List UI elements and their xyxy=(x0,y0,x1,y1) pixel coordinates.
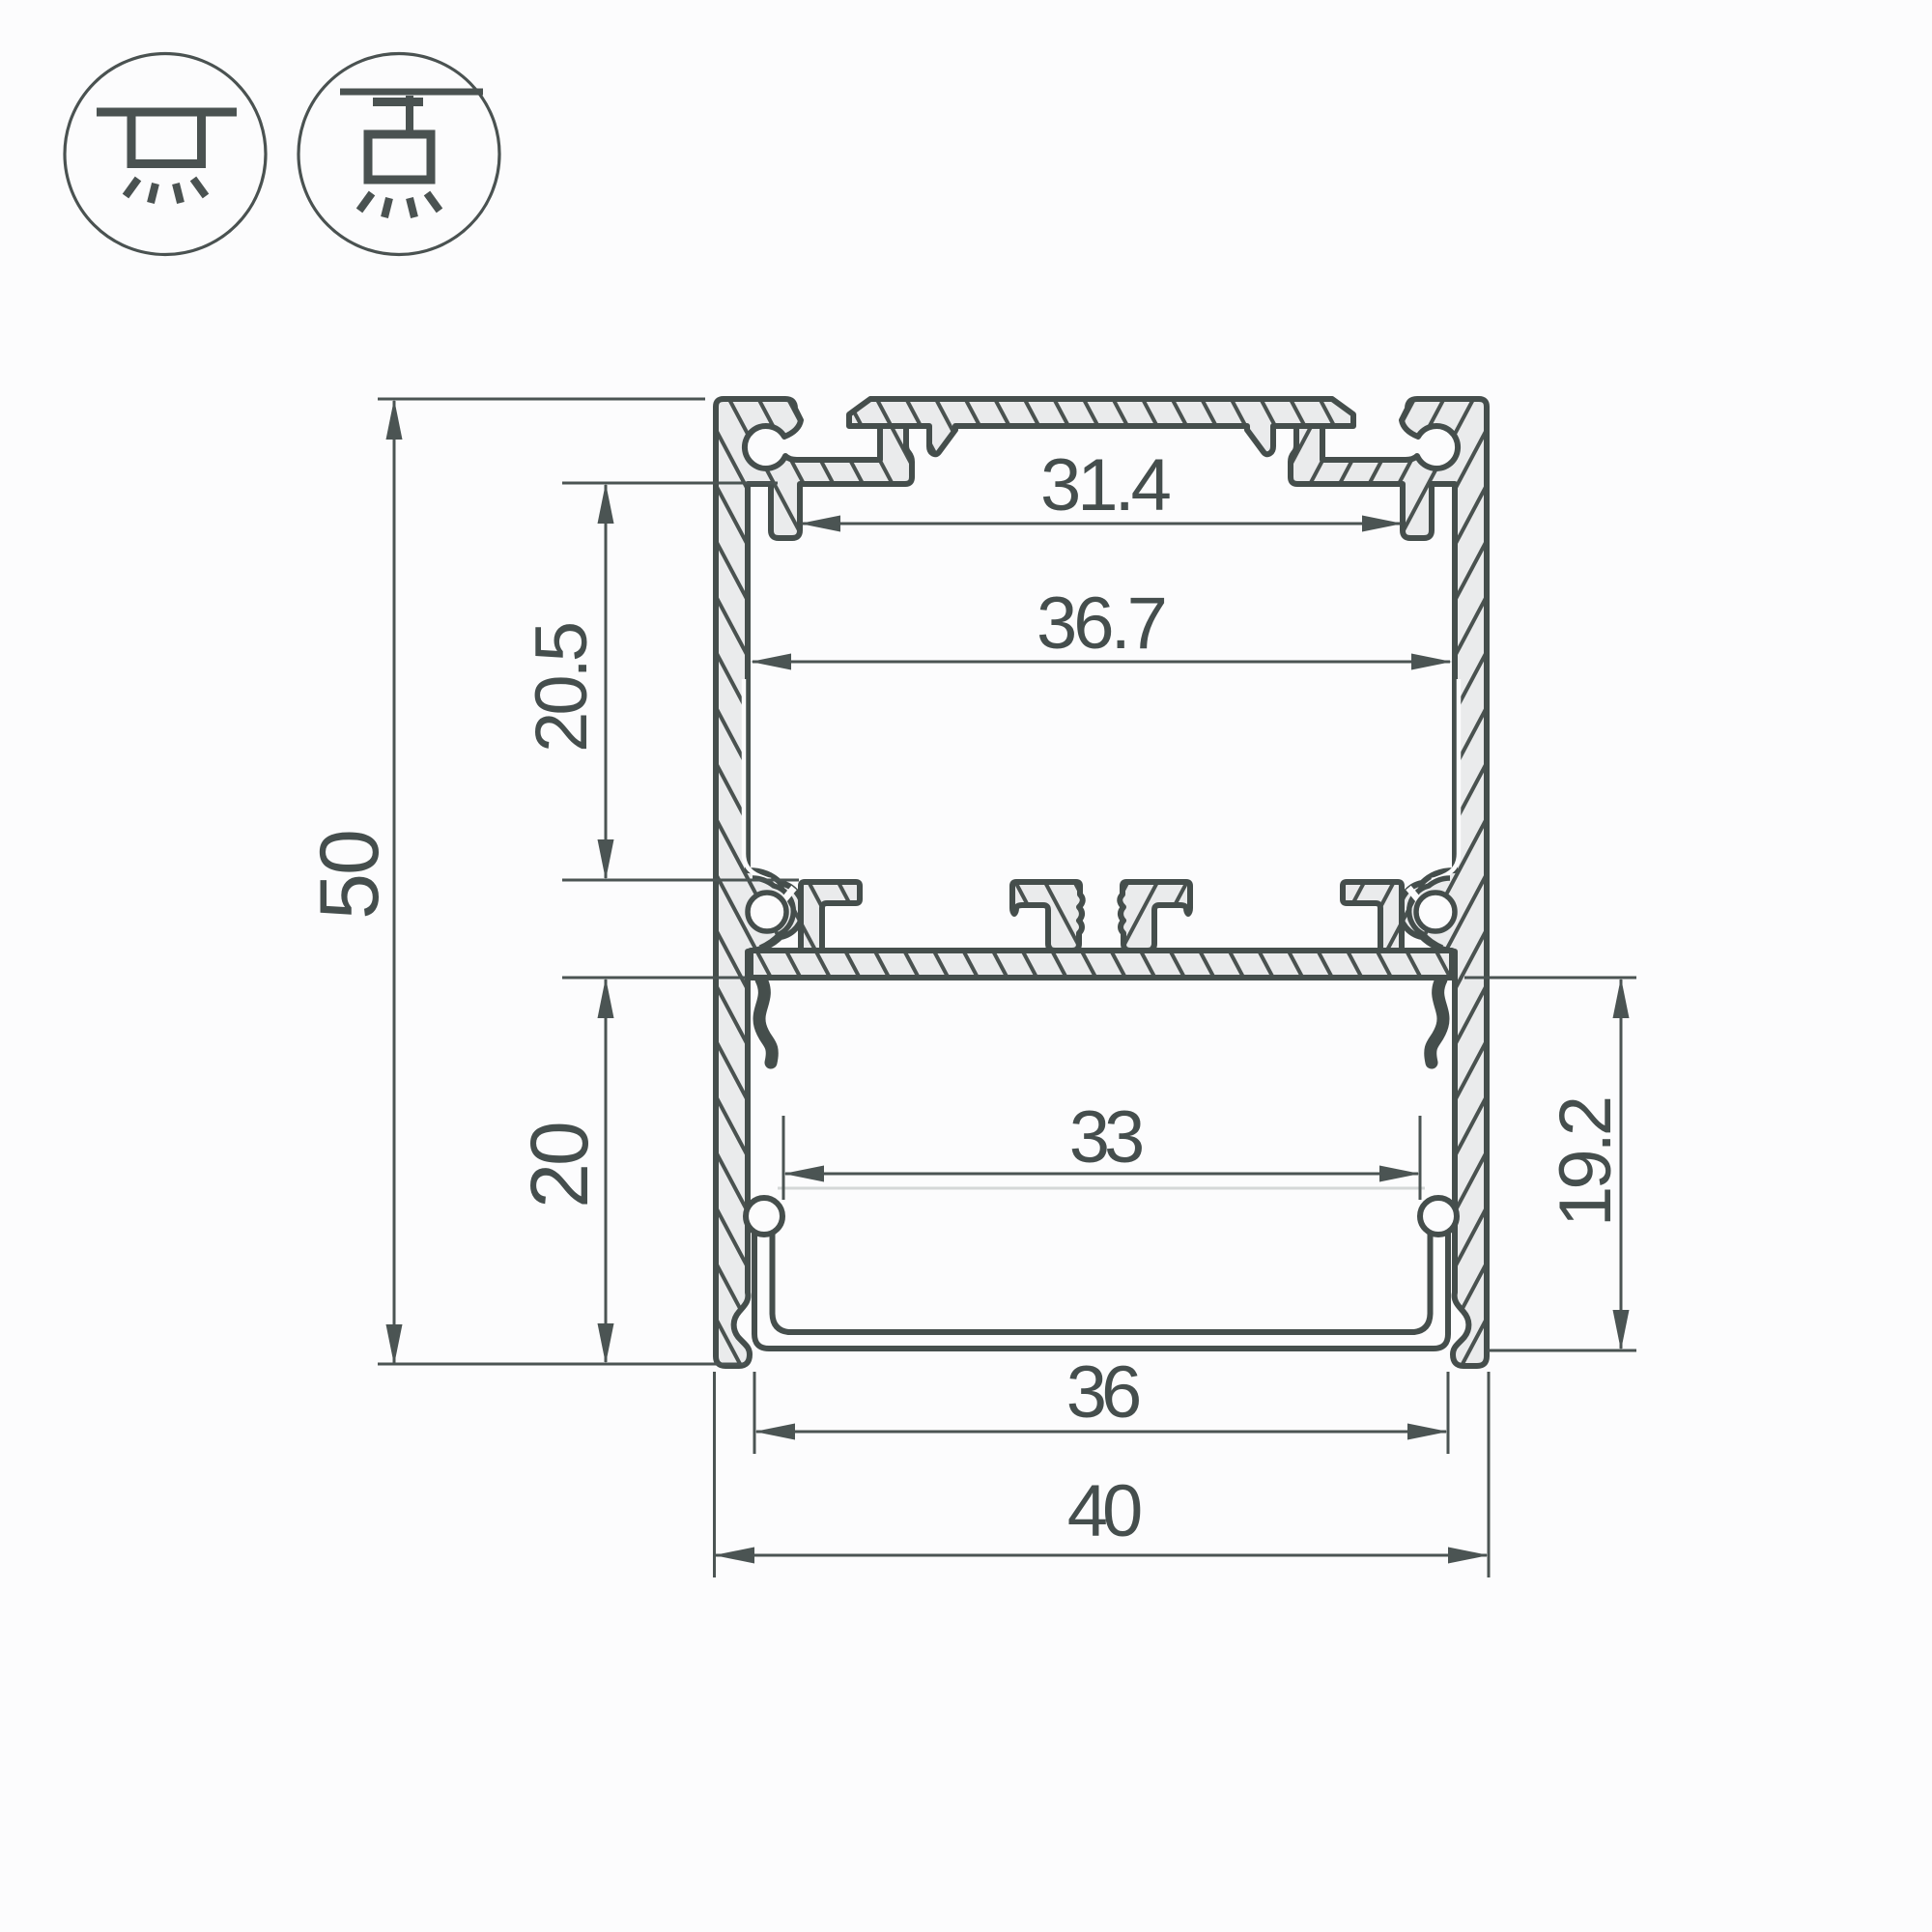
svg-text:33: 33 xyxy=(1069,1096,1142,1179)
svg-text:40: 40 xyxy=(1067,1470,1141,1552)
svg-text:20.5: 20.5 xyxy=(521,623,603,753)
svg-text:20: 20 xyxy=(514,1123,605,1208)
svg-text:50: 50 xyxy=(303,831,396,920)
svg-text:36.7: 36.7 xyxy=(1037,582,1165,665)
svg-text:31.4: 31.4 xyxy=(1040,444,1171,526)
svg-text:36: 36 xyxy=(1066,1351,1139,1434)
svg-text:19.2: 19.2 xyxy=(1545,1098,1627,1227)
